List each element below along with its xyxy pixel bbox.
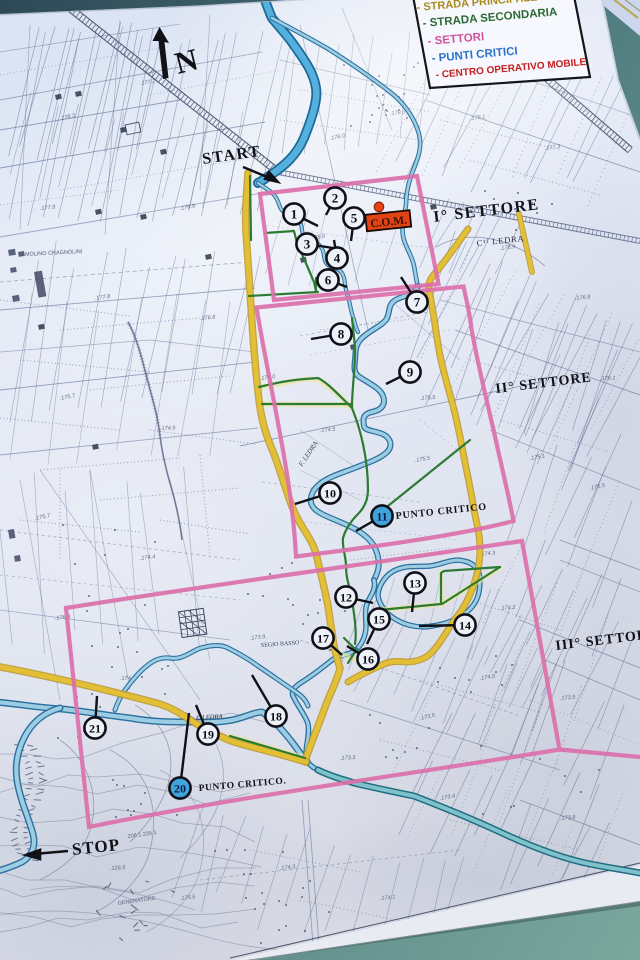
svg-text:18: 18: [270, 710, 282, 724]
svg-text:17: 17: [317, 632, 329, 646]
svg-text:13: 13: [409, 577, 421, 591]
svg-text:11: 11: [376, 510, 387, 524]
svg-text:21: 21: [89, 722, 101, 736]
svg-text:16: 16: [362, 653, 374, 667]
svg-text:4: 4: [334, 251, 341, 266]
svg-text:3: 3: [304, 237, 311, 252]
svg-text:15: 15: [373, 613, 385, 627]
svg-text:2: 2: [332, 191, 339, 206]
svg-text:10: 10: [324, 487, 336, 501]
svg-text:12: 12: [340, 591, 352, 605]
svg-text:7: 7: [414, 295, 421, 310]
svg-text:9: 9: [407, 365, 414, 380]
svg-text:1: 1: [291, 207, 298, 222]
svg-text:6: 6: [325, 273, 332, 288]
svg-text:14: 14: [459, 619, 471, 633]
svg-text:20: 20: [174, 782, 186, 796]
svg-text:8: 8: [338, 327, 345, 342]
svg-text:19: 19: [202, 728, 214, 742]
svg-text:5: 5: [351, 211, 358, 226]
